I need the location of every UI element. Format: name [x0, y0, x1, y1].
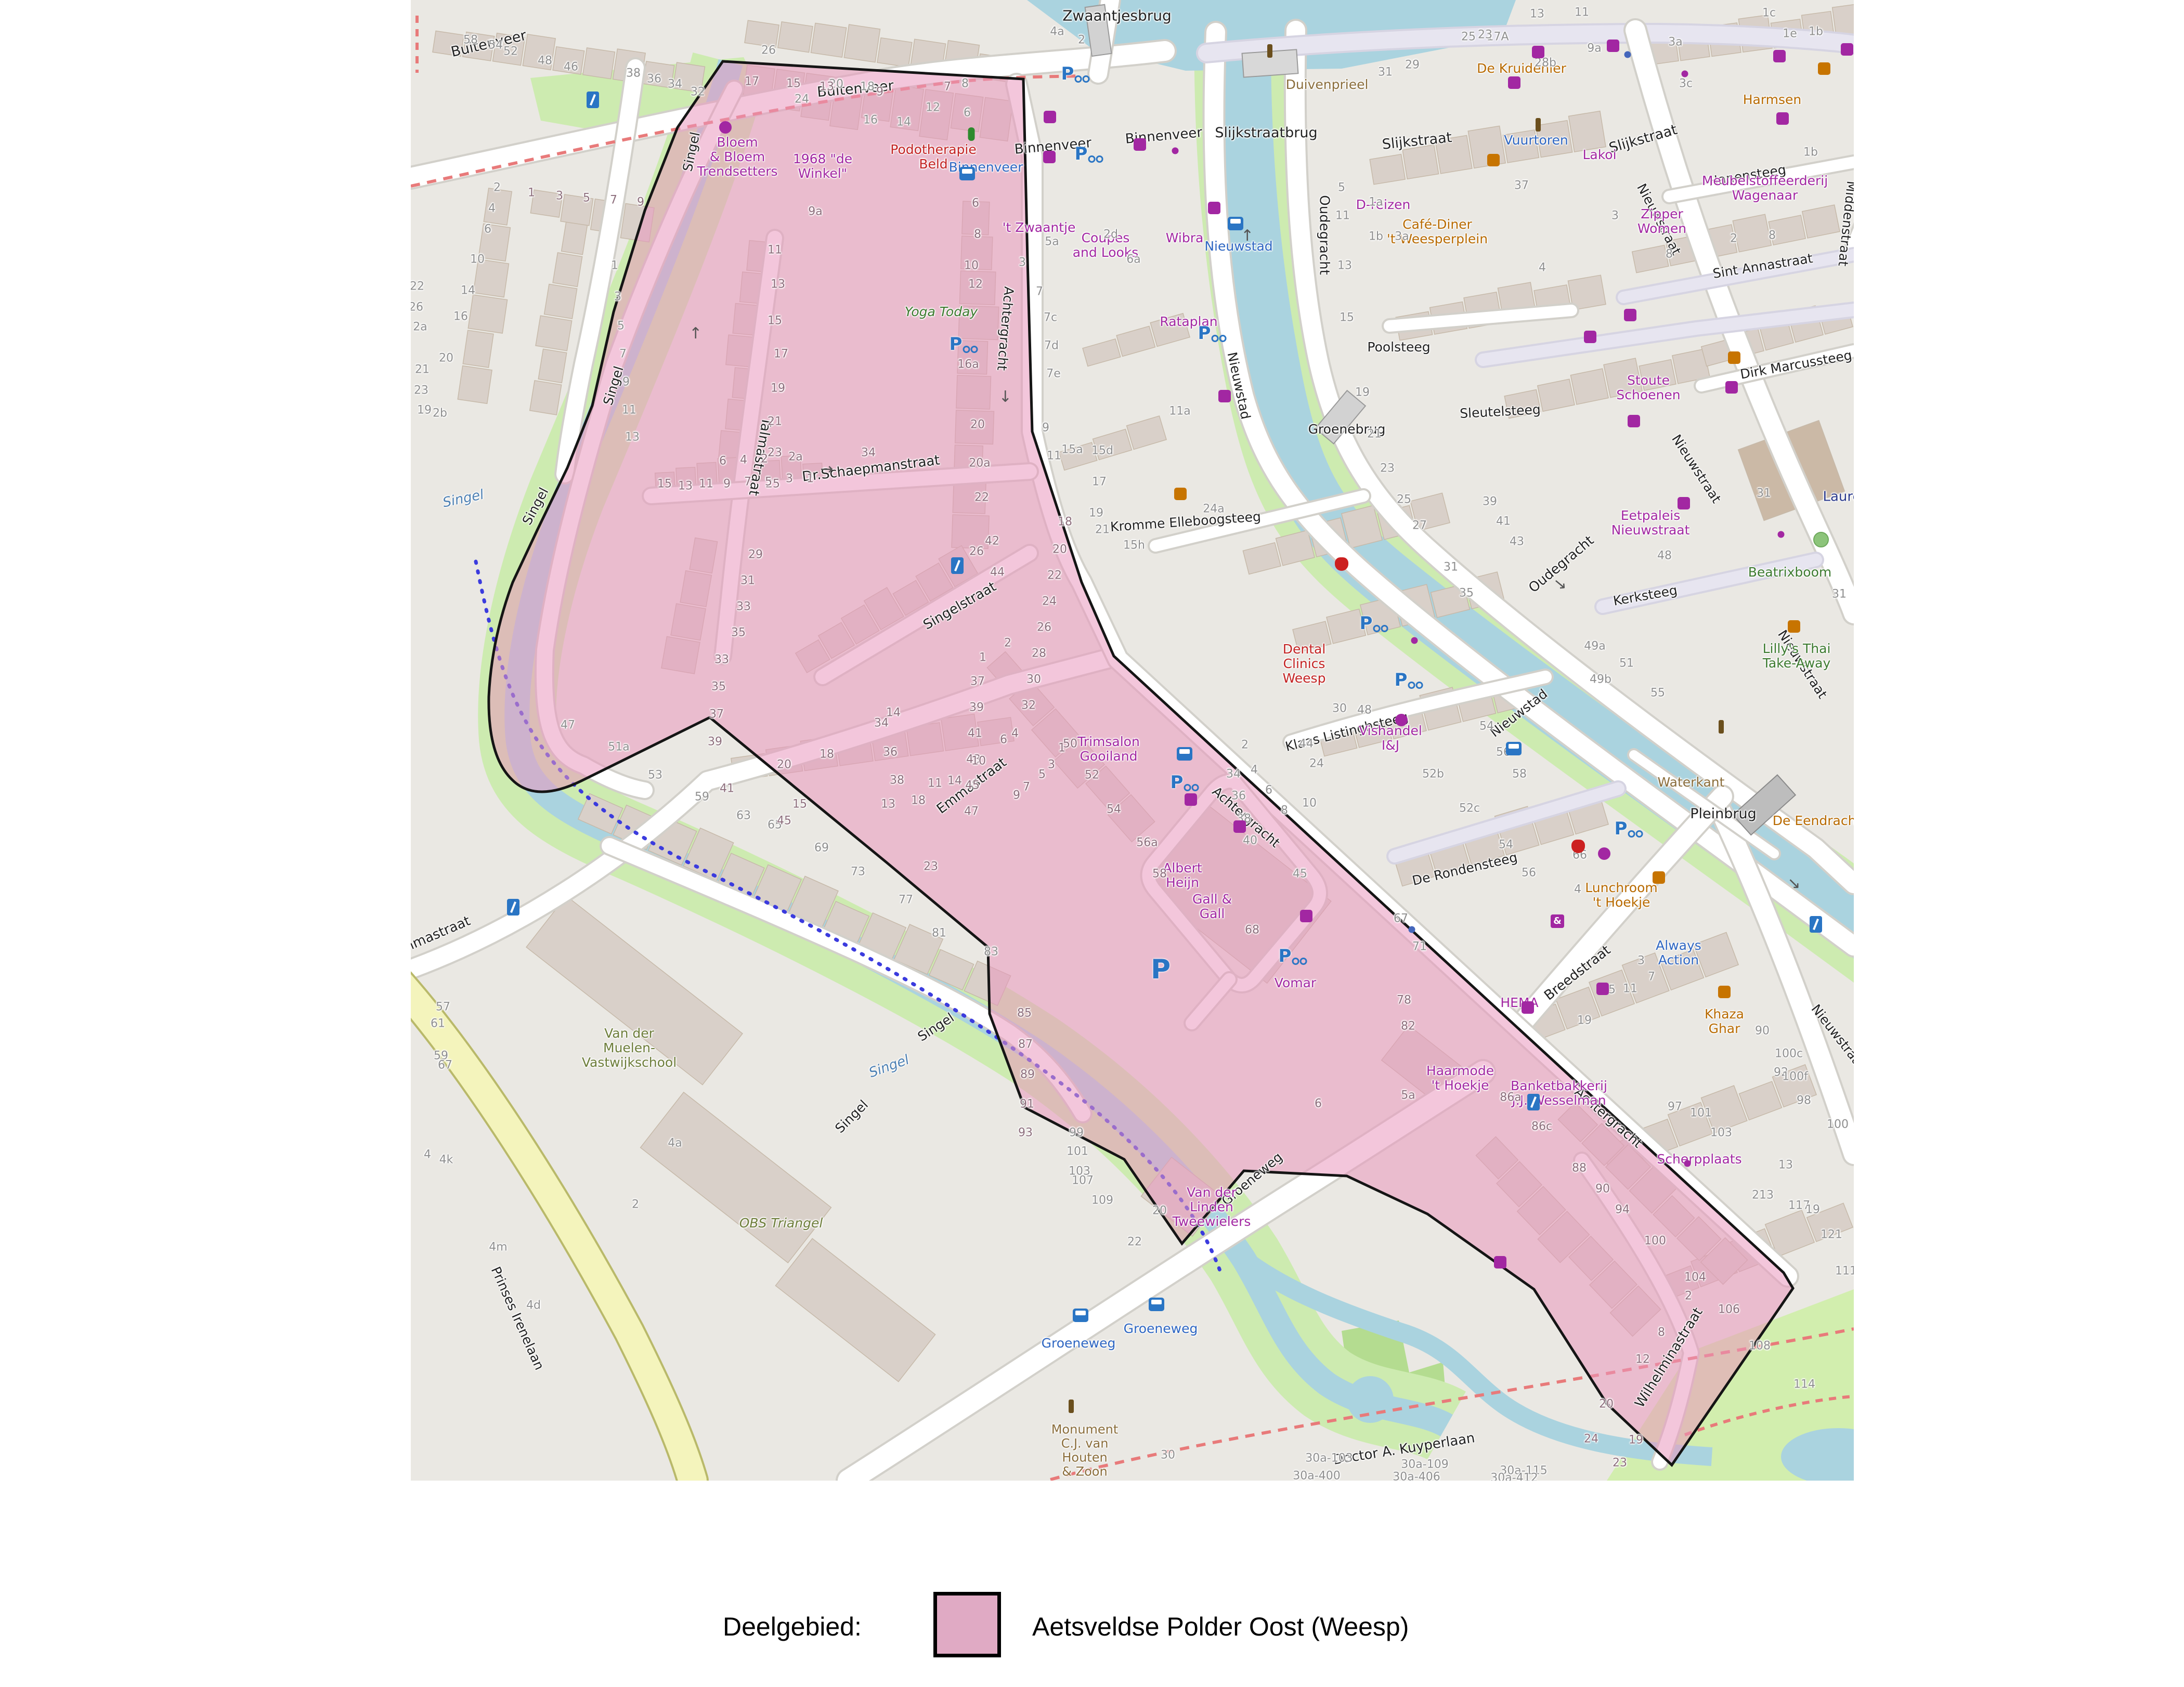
legend-swatch — [933, 1592, 1001, 1657]
building — [1570, 369, 1608, 404]
building — [673, 62, 705, 93]
building — [538, 349, 566, 383]
building — [562, 221, 588, 254]
building — [523, 34, 555, 70]
building — [1569, 111, 1606, 152]
building — [473, 259, 509, 297]
building — [530, 381, 562, 415]
building — [463, 330, 493, 368]
building — [561, 194, 593, 226]
building — [553, 253, 582, 286]
building — [1468, 126, 1505, 168]
building — [1733, 214, 1771, 252]
map-canvas: ZwaantjesbrugBuitenveerBuitenveerBinnenv… — [411, 0, 1854, 1481]
building — [458, 366, 492, 404]
building — [544, 284, 577, 319]
building — [468, 295, 507, 333]
bridge-slijkstraatbrug — [1242, 49, 1298, 77]
building — [583, 48, 615, 79]
building — [553, 47, 584, 74]
building — [877, 38, 912, 68]
building — [493, 33, 525, 66]
building — [433, 31, 464, 57]
building — [1604, 358, 1642, 398]
map-base-layers — [411, 0, 1854, 1481]
building — [1503, 130, 1539, 163]
building — [643, 61, 674, 88]
building — [1402, 145, 1438, 179]
building — [463, 32, 495, 61]
building — [778, 22, 813, 53]
pond — [1347, 1376, 1394, 1423]
building — [745, 20, 779, 47]
building — [478, 224, 510, 261]
building — [530, 190, 562, 217]
building — [844, 24, 880, 62]
building — [1370, 154, 1405, 185]
building — [536, 316, 572, 350]
building — [811, 23, 846, 58]
building — [1536, 121, 1572, 158]
legend-label: Deelgebied: — [723, 1612, 862, 1642]
report-page: ZwaantjesbrugBuitenveerBuitenveerBinnenv… — [0, 0, 2184, 1687]
building — [484, 188, 512, 225]
building — [1435, 136, 1472, 174]
legend-area-name: Aetsveldse Polder Oost (Weesp) — [1032, 1612, 1409, 1642]
